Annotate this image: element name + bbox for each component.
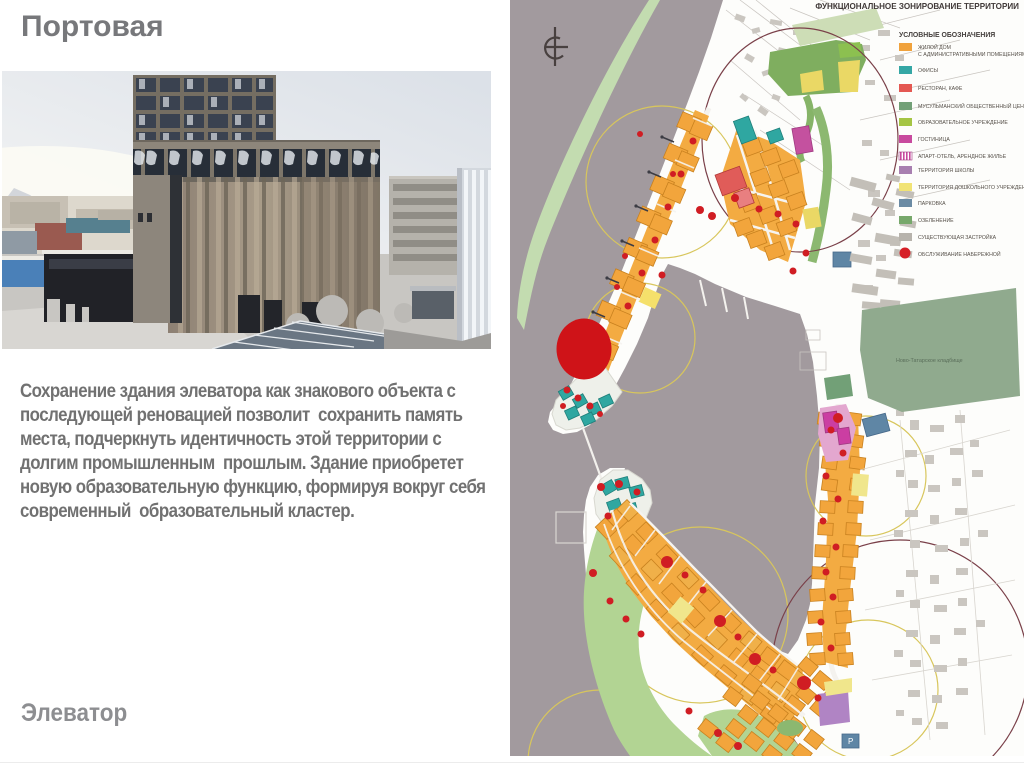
- svg-text:ОБРАЗОВАТЕЛЬНОЕ УЧРЕЖДЕНИЕ: ОБРАЗОВАТЕЛЬНОЕ УЧРЕЖДЕНИЕ: [918, 120, 1008, 126]
- svg-text:РЕСТОРАН, КАФЕ: РЕСТОРАН, КАФЕ: [918, 86, 963, 92]
- svg-text:ТЕРРИТОРИЯ ДОШКОЛЬНОГО УЧРЕЖДЕ: ТЕРРИТОРИЯ ДОШКОЛЬНОГО УЧРЕЖДЕНИЯ: [918, 185, 1024, 191]
- svg-text:P: P: [848, 737, 853, 746]
- svg-text:ТЕРРИТОРИЯ ШКОЛЫ: ТЕРРИТОРИЯ ШКОЛЫ: [918, 168, 975, 174]
- svg-text:ФУНКЦИОНАЛЬНОЕ ЗОНИРОВАНИЕ ТЕР: ФУНКЦИОНАЛЬНОЕ ЗОНИРОВАНИЕ ТЕРРИТОРИИ: [815, 2, 1019, 11]
- svg-text:ОЗЕЛЕНЕНИЕ: ОЗЕЛЕНЕНИЕ: [918, 218, 954, 224]
- svg-text:С АДМИНИСТРАТИВНЫМИ ПОМЕЩЕНИЯМ: С АДМИНИСТРАТИВНЫМИ ПОМЕЩЕНИЯМИ: [918, 52, 1024, 58]
- svg-text:Ново-Татарское кладбище: Ново-Татарское кладбище: [896, 358, 963, 364]
- svg-text:ГОСТИНИЦА: ГОСТИНИЦА: [918, 137, 950, 143]
- svg-text:ОБСЛУЖИВАНИЕ НАБЕРЕЖНОЙ: ОБСЛУЖИВАНИЕ НАБЕРЕЖНОЙ: [918, 250, 1001, 258]
- svg-text:ОФИСЫ: ОФИСЫ: [918, 68, 938, 74]
- svg-text:СУЩЕСТВУЮЩАЯ ЗАСТРОЙКА: СУЩЕСТВУЮЩАЯ ЗАСТРОЙКА: [918, 233, 997, 241]
- svg-text:ЖИЛОЙ ДОМ: ЖИЛОЙ ДОМ: [918, 43, 951, 51]
- svg-text:ПАРКОВКА: ПАРКОВКА: [918, 201, 946, 207]
- svg-text:АПАРТ-ОТЕЛЬ, АРЕНДНОЕ ЖИЛЬЕ: АПАРТ-ОТЕЛЬ, АРЕНДНОЕ ЖИЛЬЕ: [918, 154, 1007, 160]
- svg-text:МУСУЛЬМАНСКИЙ ОБЩЕСТВЕННЫЙ ЦЕН: МУСУЛЬМАНСКИЙ ОБЩЕСТВЕННЫЙ ЦЕНТР: [918, 102, 1024, 110]
- svg-text:УСЛОВНЫЕ ОБОЗНАЧЕНИЯ: УСЛОВНЫЕ ОБОЗНАЧЕНИЯ: [899, 32, 995, 39]
